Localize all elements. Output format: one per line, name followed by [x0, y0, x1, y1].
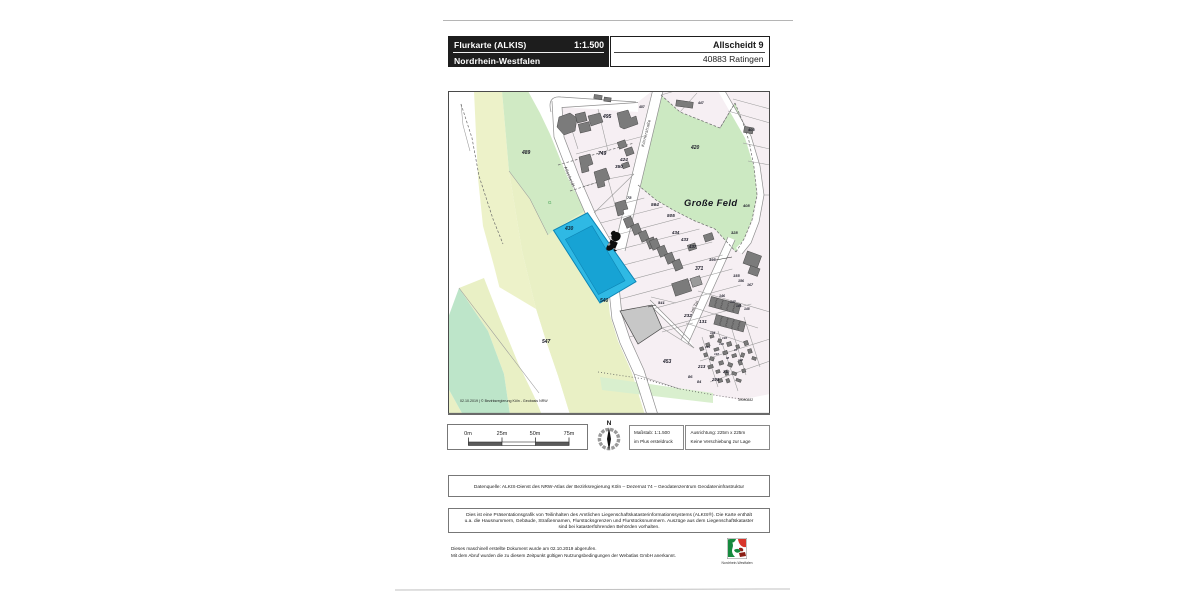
svg-text:78: 78	[627, 195, 632, 200]
svg-text:149: 149	[736, 304, 742, 308]
svg-text:420: 420	[690, 145, 700, 151]
svg-text:213: 213	[697, 364, 706, 369]
svg-text:453: 453	[662, 359, 672, 365]
svg-text:505: 505	[667, 213, 675, 218]
svg-text:N: N	[607, 420, 612, 427]
svg-text:437: 437	[688, 244, 697, 249]
svg-text:350: 350	[615, 164, 623, 169]
svg-text:232: 232	[683, 313, 692, 318]
svg-text:328: 328	[731, 230, 738, 235]
svg-text:403: 403	[747, 127, 755, 132]
svg-text:132: 132	[714, 352, 719, 356]
svg-text:371: 371	[695, 266, 704, 272]
svg-text:131: 131	[699, 319, 707, 324]
svg-text:02.10.2019 | © Bezirksregierun: 02.10.2019 | © Bezirksregierung Köln - G…	[460, 399, 548, 403]
svg-text:86: 86	[688, 374, 693, 379]
svg-text:97: 97	[734, 348, 738, 352]
svg-text:167: 167	[747, 283, 754, 287]
svg-text:408: 408	[742, 203, 750, 208]
svg-text:146: 146	[719, 294, 726, 298]
svg-text:395: 395	[709, 257, 716, 262]
svg-text:75m: 75m	[564, 431, 575, 437]
svg-text:433: 433	[680, 237, 689, 242]
svg-text:50m: 50m	[530, 431, 541, 437]
svg-text:495: 495	[602, 114, 612, 120]
svg-text:564: 564	[651, 202, 659, 207]
svg-text:0m: 0m	[464, 431, 472, 437]
svg-text:424: 424	[619, 157, 628, 162]
svg-text:145: 145	[744, 307, 750, 311]
svg-text:430: 430	[564, 226, 574, 232]
svg-text:489: 489	[521, 150, 531, 156]
svg-text:749: 749	[598, 151, 607, 157]
svg-text:457: 457	[638, 105, 646, 109]
svg-text:G: G	[548, 200, 552, 205]
svg-text:134: 134	[710, 331, 716, 335]
svg-text:540: 540	[600, 298, 609, 304]
svg-text:130: 130	[719, 342, 724, 346]
svg-text:139: 139	[705, 345, 710, 349]
svg-text:434: 434	[671, 230, 680, 235]
svg-text:203: 203	[711, 377, 720, 382]
svg-text:212: 212	[722, 370, 730, 374]
svg-text:98: 98	[726, 356, 730, 360]
svg-text:547: 547	[542, 339, 551, 345]
svg-text:Große Feld: Große Feld	[684, 197, 737, 208]
svg-text:155: 155	[733, 273, 740, 278]
svg-text:25m: 25m	[497, 431, 508, 437]
svg-text:148: 148	[738, 358, 743, 362]
svg-text:136: 136	[722, 336, 727, 340]
svg-text:541: 541	[658, 300, 665, 305]
svg-text:447: 447	[697, 101, 705, 105]
svg-text:39000382: 39000382	[738, 398, 753, 402]
svg-text:156: 156	[738, 279, 745, 283]
